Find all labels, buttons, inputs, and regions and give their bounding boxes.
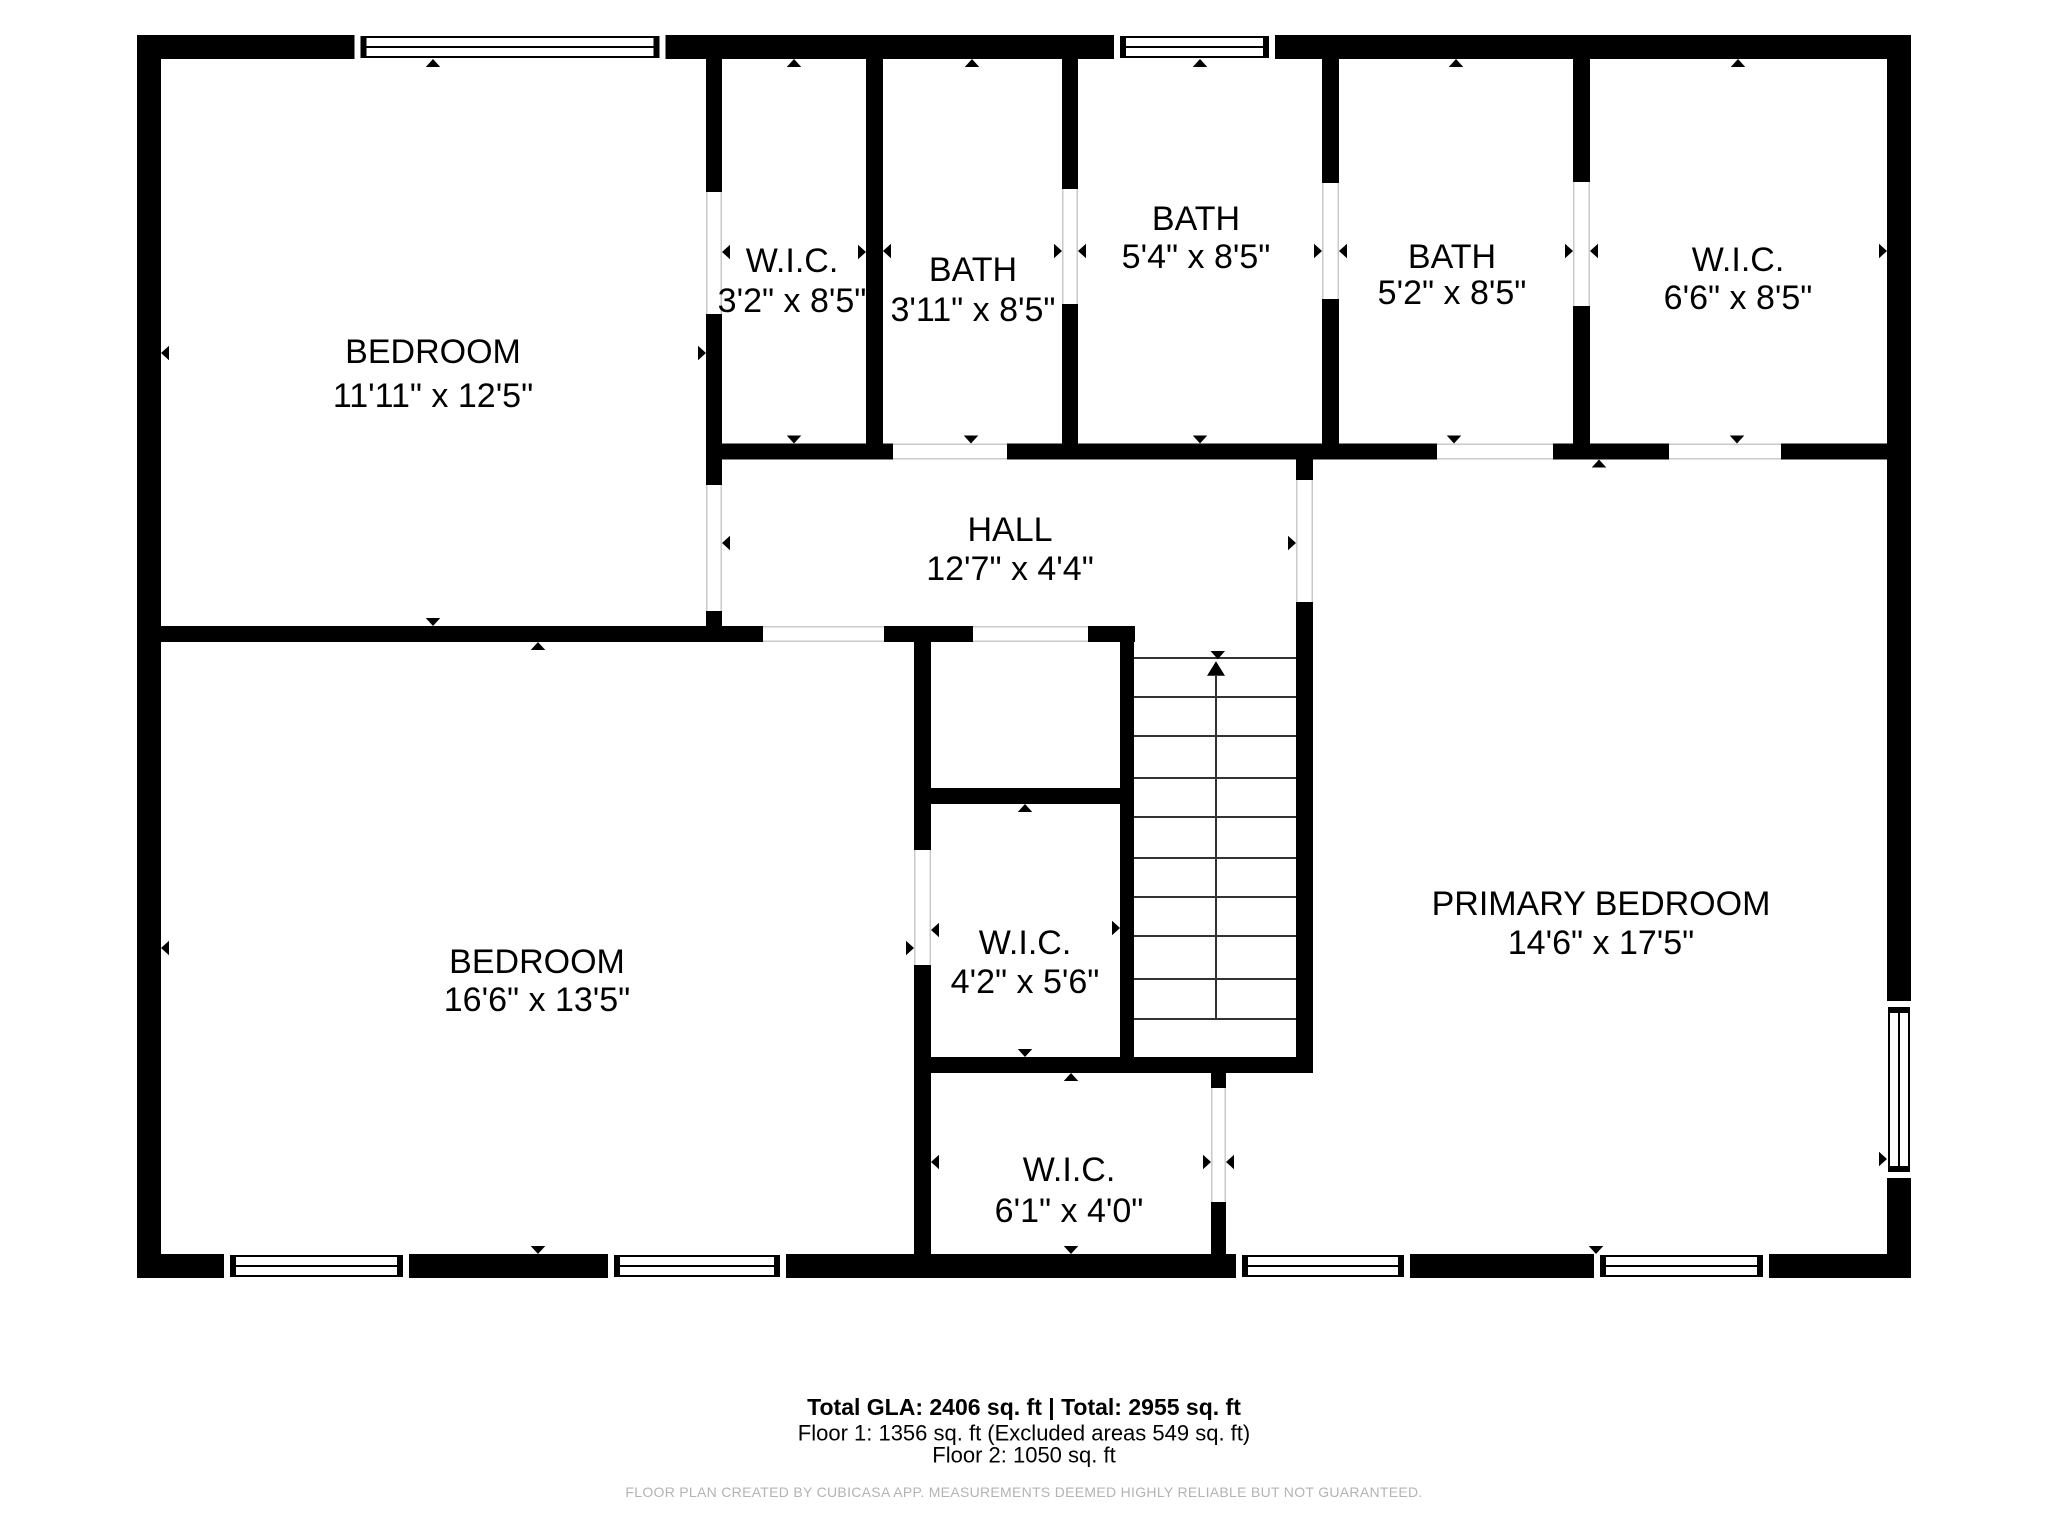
svg-text:PRIMARY BEDROOM: PRIMARY BEDROOM	[1432, 885, 1771, 923]
svg-text:W.I.C.: W.I.C.	[746, 242, 839, 280]
svg-text:11'11" x 12'5": 11'11" x 12'5"	[333, 377, 533, 415]
svg-text:6'1" x 4'0": 6'1" x 4'0"	[995, 1192, 1144, 1230]
svg-text:3'11" x 8'5": 3'11" x 8'5"	[890, 291, 1055, 329]
svg-text:HALL: HALL	[967, 511, 1052, 549]
svg-text:Total GLA: 2406 sq. ft | Total: Total GLA: 2406 sq. ft | Total: 2955 sq.…	[807, 1394, 1241, 1420]
svg-text:BEDROOM: BEDROOM	[345, 333, 521, 371]
svg-text:BEDROOM: BEDROOM	[449, 943, 625, 981]
svg-text:BATH: BATH	[929, 251, 1017, 289]
svg-text:16'6" x 13'5": 16'6" x 13'5"	[444, 981, 630, 1019]
svg-text:W.I.C.: W.I.C.	[1023, 1151, 1116, 1189]
svg-text:3'2" x 8'5": 3'2" x 8'5"	[718, 282, 867, 320]
svg-text:Floor 2: 1050 sq. ft: Floor 2: 1050 sq. ft	[932, 1443, 1115, 1468]
svg-text:5'4" x 8'5": 5'4" x 8'5"	[1122, 238, 1271, 276]
svg-text:FLOOR PLAN CREATED BY CUBICASA: FLOOR PLAN CREATED BY CUBICASA APP. MEAS…	[625, 1484, 1422, 1500]
svg-text:BATH: BATH	[1408, 238, 1496, 276]
svg-text:12'7" x 4'4": 12'7" x 4'4"	[926, 550, 1094, 588]
svg-text:4'2" x 5'6": 4'2" x 5'6"	[951, 963, 1100, 1001]
svg-text:14'6" x 17'5": 14'6" x 17'5"	[1508, 924, 1694, 962]
svg-text:5'2" x 8'5": 5'2" x 8'5"	[1378, 274, 1527, 312]
svg-text:BATH: BATH	[1152, 200, 1240, 238]
svg-text:6'6" x 8'5": 6'6" x 8'5"	[1664, 279, 1813, 317]
svg-text:W.I.C.: W.I.C.	[979, 924, 1072, 962]
svg-text:W.I.C.: W.I.C.	[1692, 241, 1785, 279]
